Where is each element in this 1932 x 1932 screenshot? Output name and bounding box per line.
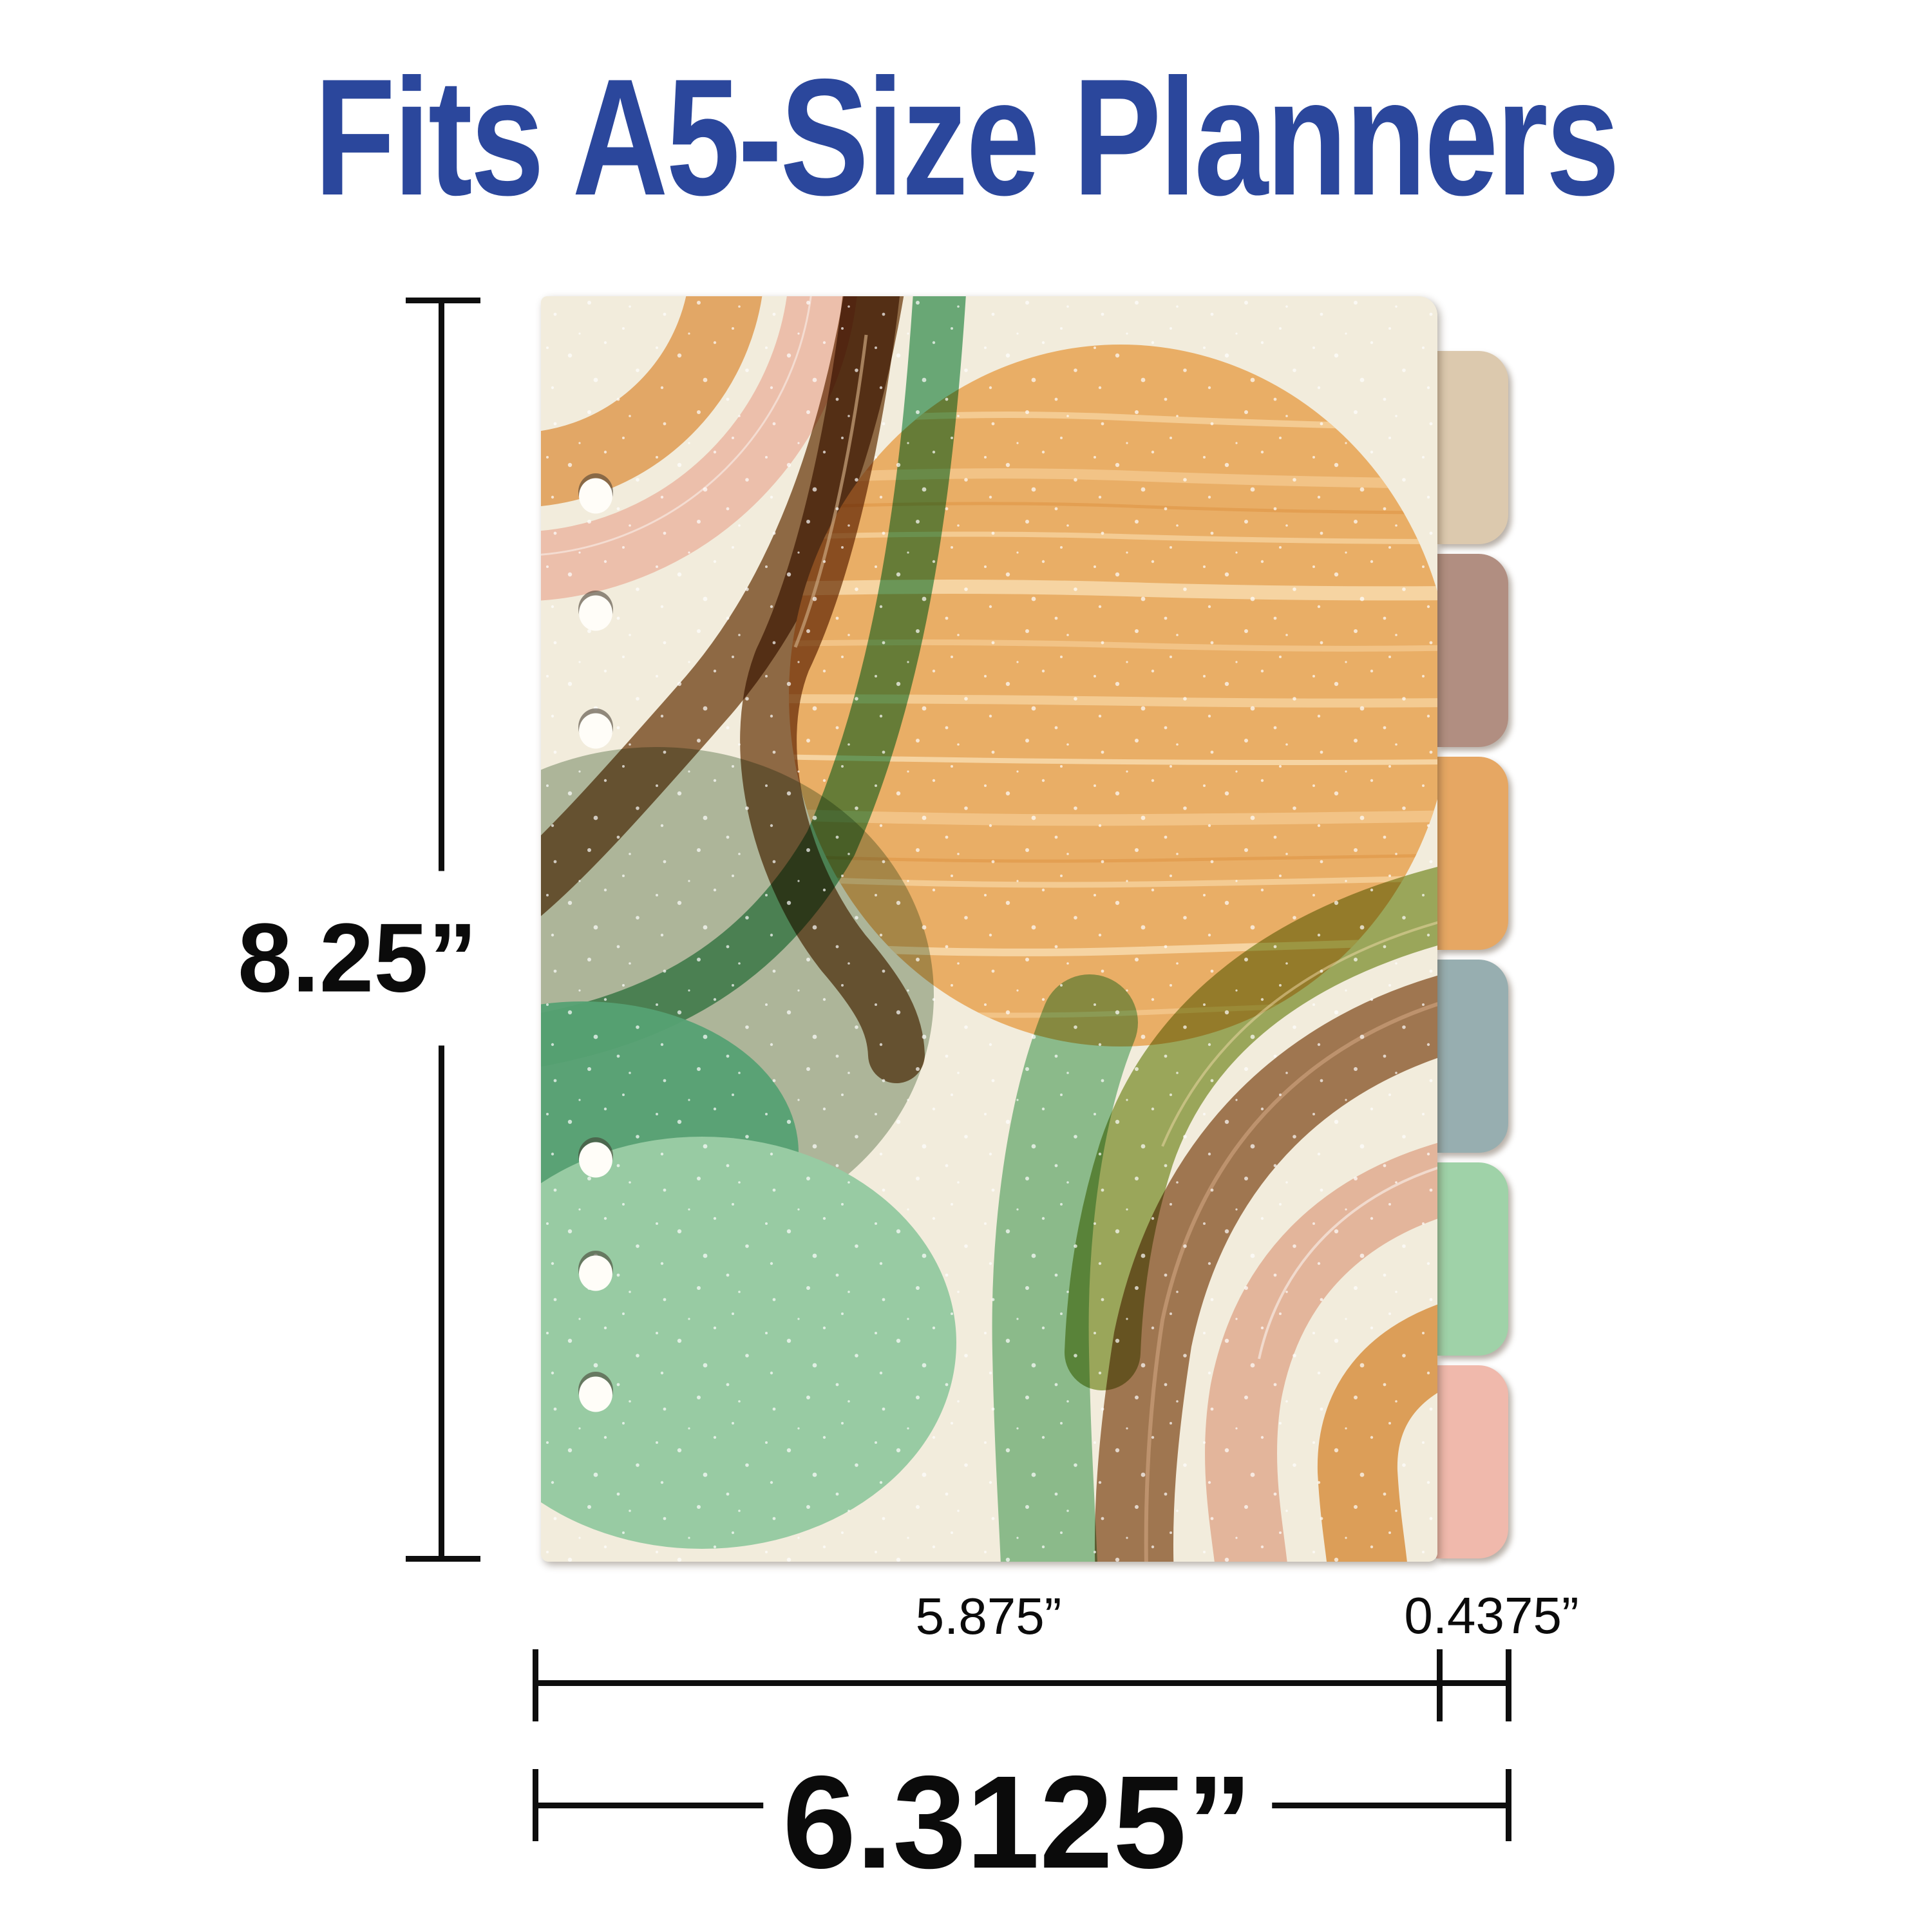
tab-5 bbox=[1436, 1162, 1508, 1356]
body-width-line bbox=[535, 1680, 1508, 1686]
binder-hole bbox=[578, 591, 613, 631]
product-dimension-diagram: Fits A5-Size Planners bbox=[0, 0, 1932, 1932]
divider-artwork bbox=[541, 296, 1437, 1562]
divider-sheet bbox=[541, 296, 1437, 1562]
binder-hole bbox=[578, 1372, 613, 1412]
page-title: Fits A5-Size Planners bbox=[193, 54, 1739, 220]
height-dim-tick-bottom bbox=[406, 1556, 480, 1562]
tab-width-dim-label: 0.4375” bbox=[1404, 1586, 1578, 1645]
body-width-dim-label: 5.875” bbox=[916, 1587, 1062, 1646]
tab-2 bbox=[1436, 554, 1508, 747]
binder-hole bbox=[578, 473, 613, 514]
binder-hole bbox=[578, 1137, 613, 1178]
binder-hole bbox=[578, 708, 613, 749]
tab-1 bbox=[1436, 351, 1508, 544]
total-width-dim-label: 6.3125” bbox=[763, 1743, 1272, 1902]
binder-hole bbox=[578, 1251, 613, 1291]
tab-3 bbox=[1436, 757, 1508, 950]
tab-6 bbox=[1436, 1365, 1508, 1558]
tab-4 bbox=[1436, 960, 1508, 1153]
height-dim-label: 8.25” bbox=[227, 871, 488, 1046]
